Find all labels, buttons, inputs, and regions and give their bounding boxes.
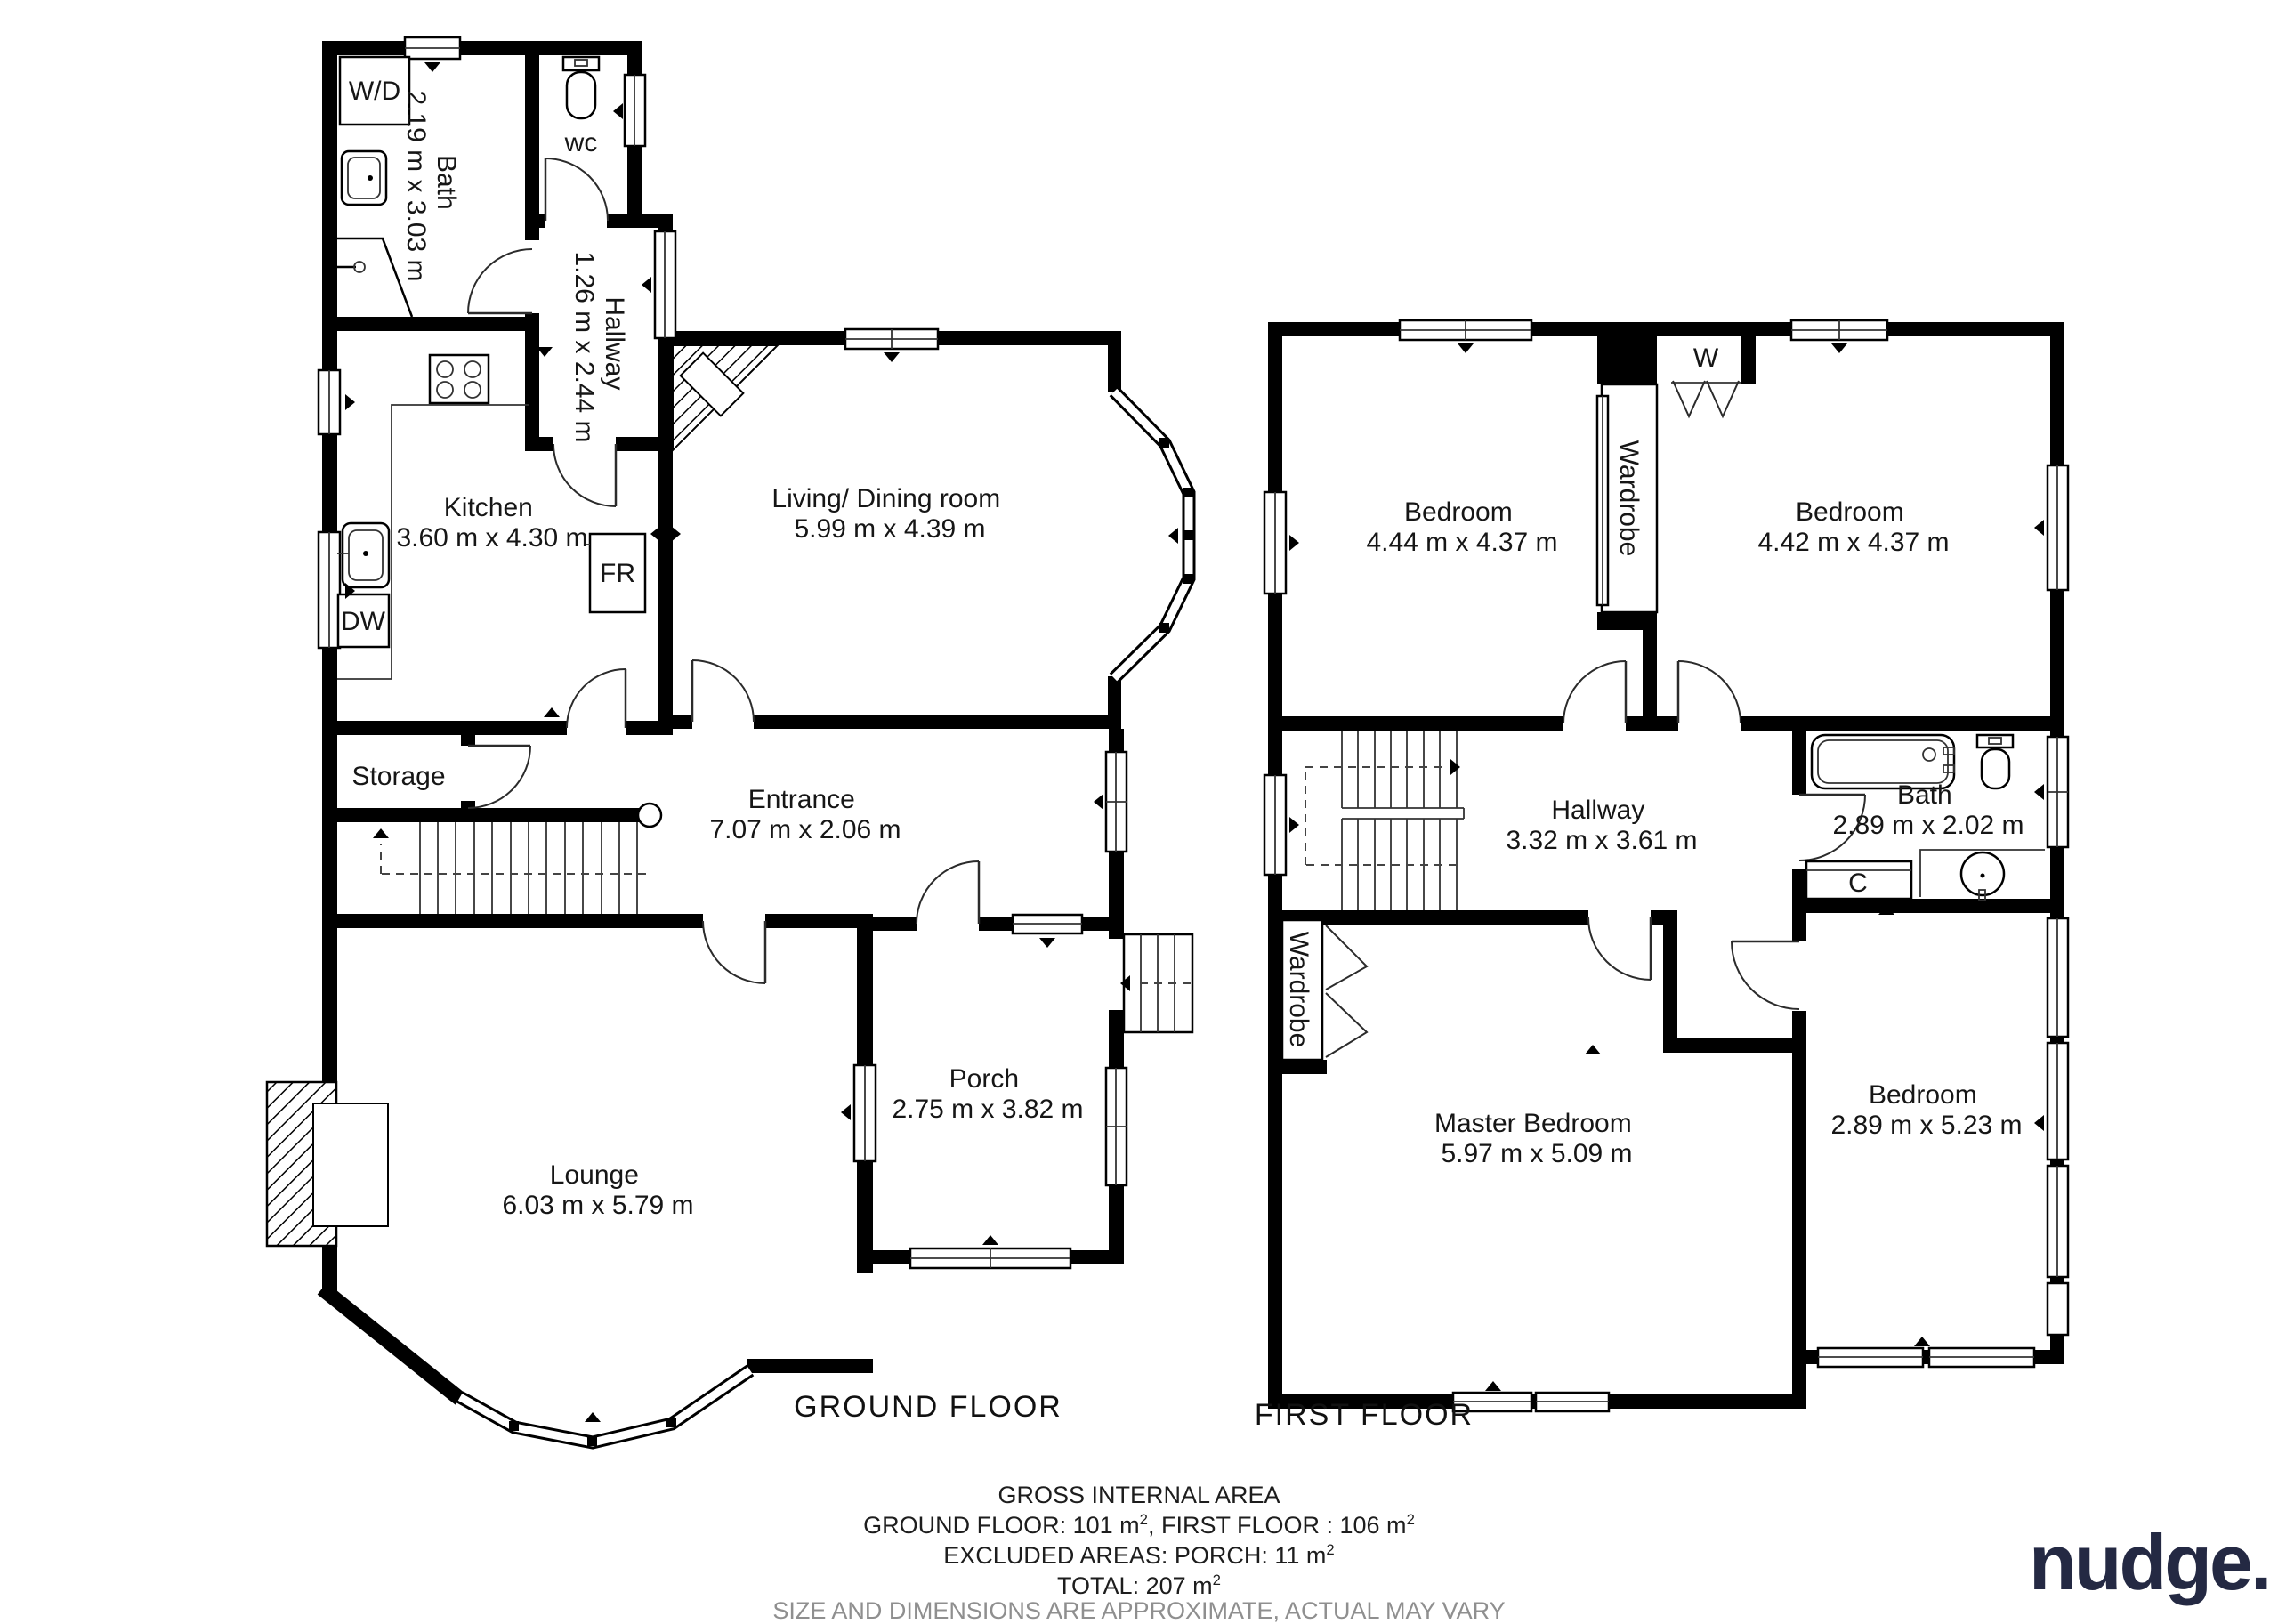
room-label-lounge: Lounge 6.03 m x 5.79 m <box>502 1160 693 1220</box>
wardrobe-master-label: Wardrobe <box>1284 932 1313 1048</box>
w-closet <box>1671 381 1741 416</box>
ground-floor-title: GROUND FLOOR <box>794 1390 1062 1424</box>
dishwasher-label: DW <box>341 607 386 636</box>
washer-dryer-label: W/D <box>349 77 400 106</box>
room-label-bedroom1: Bedroom 4.44 m x 4.37 m <box>1366 497 1557 557</box>
porch-steps <box>1120 934 1192 1032</box>
room-label-master: Master Bedroom 5.97 m x 5.09 m <box>1434 1109 1639 1168</box>
room-label-hallway-f: Hallway 3.32 m x 3.61 m <box>1506 796 1697 855</box>
summary-areas: GROUND FLOOR: 101 m2, FIRST FLOOR : 106 … <box>0 1507 2278 1538</box>
first-arrows <box>1289 343 2044 1391</box>
area-summary: GROSS INTERNAL AREA GROUND FLOOR: 101 m2… <box>0 1483 2278 1623</box>
wc-toilet <box>563 57 599 118</box>
first-door-gaps <box>1563 715 1806 1011</box>
bath-basin <box>1920 850 2045 901</box>
cupboard-c-label: C <box>1848 869 1868 898</box>
fireplace-lounge <box>267 1082 388 1246</box>
first-walls <box>1268 322 2064 1409</box>
room-label-kitchen: Kitchen 3.60 m x 4.30 m <box>396 493 587 553</box>
room-label-bedroom2: Bedroom 4.42 m x 4.37 m <box>1757 497 1949 557</box>
fridge-label: FR <box>600 559 635 588</box>
wardrobe-top-label: Wardrobe <box>1614 440 1644 557</box>
kitchen-sink <box>337 523 389 587</box>
shower <box>337 238 412 317</box>
stove <box>430 355 489 403</box>
nudge-logo: nudge. <box>2029 1517 2269 1608</box>
room-label-bath-g: Bath 2.19 m x 3.03 m <box>401 90 461 281</box>
room-label-wc: wc <box>564 128 598 158</box>
ground-labels: W/D Bath 2.19 m x 3.03 m wc Hallway 1.26… <box>341 77 1084 1424</box>
fireplace-living <box>673 345 778 450</box>
room-label-bedroom3: Bedroom 2.89 m x 5.23 m <box>1830 1080 2022 1140</box>
room-label-hallway-g: Hallway 1.26 m x 2.44 m <box>569 251 629 442</box>
ground-walls <box>322 41 1193 1446</box>
ground-floor-plan: W/D Bath 2.19 m x 3.03 m wc Hallway 1.26… <box>267 37 1193 1446</box>
floorplan-canvas: W/D Bath 2.19 m x 3.03 m wc Hallway 1.26… <box>0 0 2278 1610</box>
summary-title: GROSS INTERNAL AREA <box>0 1483 2278 1507</box>
first-stairs <box>1305 731 1464 910</box>
toilet-first <box>1977 735 2013 788</box>
room-label-living: Living/ Dining room 5.99 m x 4.39 m <box>771 484 1007 544</box>
first-floor-title: FIRST FLOOR <box>1255 1398 1474 1432</box>
summary-total: TOTAL: 207 m2 <box>0 1568 2278 1598</box>
bath-sink <box>342 151 386 205</box>
room-label-entrance: Entrance 7.07 m x 2.06 m <box>709 785 901 844</box>
summary-excluded: EXCLUDED AREAS: PORCH: 11 m2 <box>0 1538 2278 1568</box>
w-closet-label: W <box>1693 343 1719 373</box>
room-label-porch: Porch 2.75 m x 3.82 m <box>892 1064 1083 1124</box>
first-floor-plan: Bedroom 4.44 m x 4.37 m Wardrobe W Bedro… <box>1255 320 2068 1432</box>
room-label-storage: Storage <box>351 762 445 791</box>
ground-doors <box>468 158 979 983</box>
summary-disclaimer: SIZE AND DIMENSIONS ARE APPROXIMATE, ACT… <box>0 1598 2278 1623</box>
